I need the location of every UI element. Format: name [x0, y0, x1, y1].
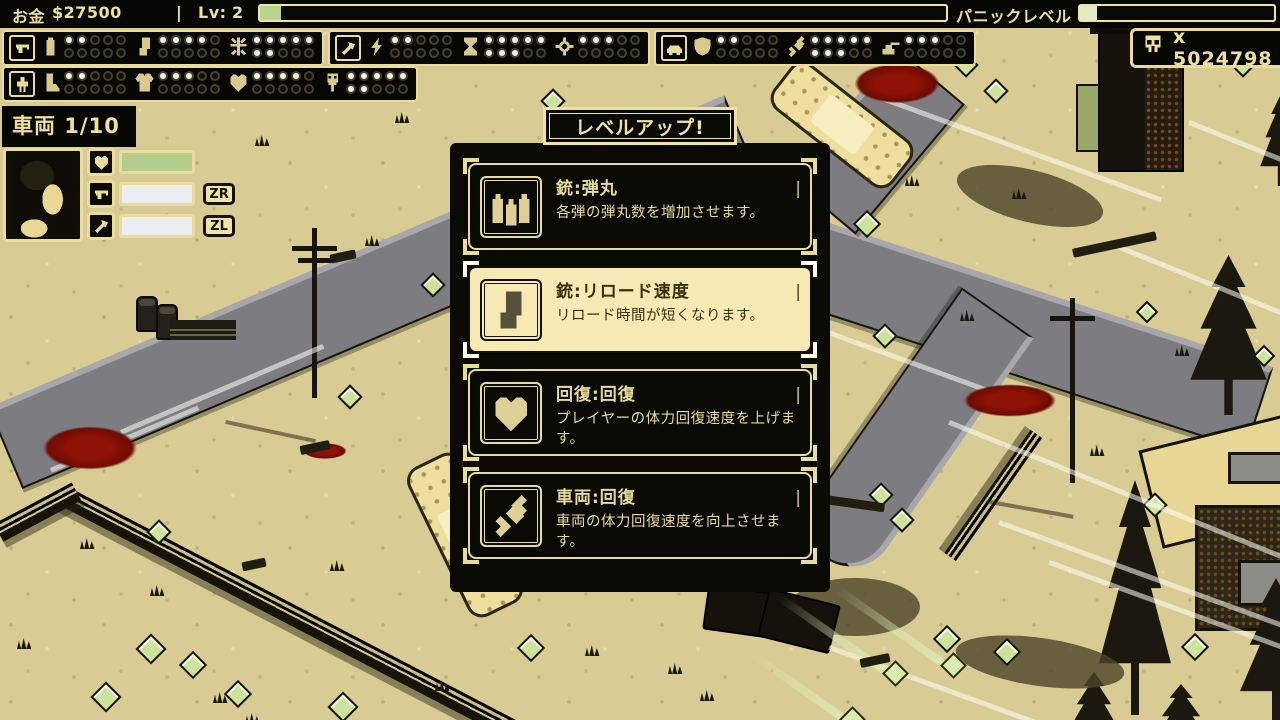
levelup-title: レベルアップ! — [543, 107, 737, 145]
option-description: 車両の体力回復速度を向上させます。 — [556, 513, 802, 552]
levelup-option-2[interactable]: 銃:リロード速度|リロード時間が短くなります。 — [468, 266, 812, 353]
heart-icon-frame — [480, 382, 542, 444]
option-name: 車両:回復 — [556, 483, 636, 508]
levelup-option-4[interactable]: 車両:回復|車両の体力回復速度を向上させます。 — [468, 472, 812, 559]
game-screen: お金 $27500 | Lv: 2 パニックレベル x 5024798 車両 1… — [0, 0, 1280, 720]
option-level-marker: | — [795, 179, 802, 199]
magazine-icon-frame — [480, 279, 542, 341]
bullets-icon — [490, 186, 532, 228]
levelup-option-3[interactable]: 回復:回復|プレイヤーの体力回復速度を上げます。 — [468, 369, 812, 456]
wrench-icon-frame — [480, 485, 542, 547]
magazine-icon — [490, 289, 532, 331]
option-description: プレイヤーの体力回復速度を上げます。 — [556, 410, 802, 449]
option-level-marker: | — [795, 488, 802, 508]
levelup-dialog: 銃:弾丸|各弾の弾丸数を増加させます。銃:リロード速度|リロード時間が短くなりま… — [450, 143, 830, 592]
option-level-marker: | — [795, 385, 802, 405]
heart-icon — [490, 392, 532, 434]
wrench-icon — [490, 495, 532, 537]
levelup-option-1[interactable]: 銃:弾丸|各弾の弾丸数を増加させます。 — [468, 163, 812, 250]
option-description: 各弾の弾丸数を増加させます。 — [556, 204, 802, 224]
option-level-marker: | — [795, 282, 802, 302]
option-name: 回復:回復 — [556, 380, 636, 405]
option-name: 銃:弾丸 — [556, 174, 618, 199]
option-name: 銃:リロード速度 — [556, 277, 690, 302]
option-description: リロード時間が短くなります。 — [556, 307, 802, 327]
bullets-icon-frame — [480, 176, 542, 238]
